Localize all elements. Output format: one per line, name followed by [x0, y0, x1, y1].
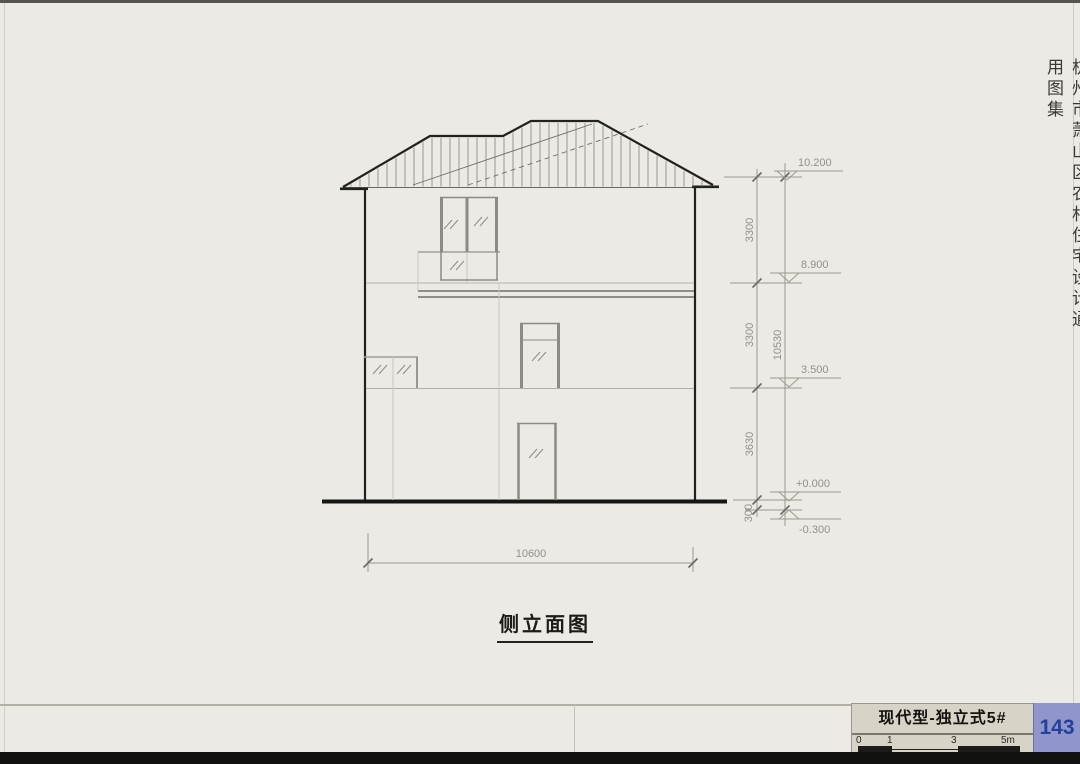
dimension-texts: 3300 3300 3630 300 10530 [743, 218, 784, 522]
atlas-page: 3300 3300 3630 300 10530 10.200 8.900 3.… [0, 0, 1080, 764]
page-number: 143 [1033, 703, 1080, 752]
drawing-title: 侧立面图 [497, 608, 593, 643]
level-mark-ground: +0.000 [770, 478, 841, 501]
scale-label-1: 1 [887, 735, 893, 746]
page-bottom-bar [0, 752, 1080, 764]
walls [365, 187, 695, 500]
window-middle [520, 323, 560, 388]
title-block-rule [0, 704, 851, 706]
door [517, 423, 557, 500]
width-dimension: 10600 [364, 533, 698, 572]
dim-overall-height: 10530 [772, 330, 784, 361]
scale-label-3: 3 [951, 735, 957, 746]
elevation-drawing-canvas: 3300 3300 3630 300 10530 10.200 8.900 3.… [0, 0, 1080, 764]
dim-seg-0: 3300 [744, 218, 756, 242]
level-mark-floor2: 8.900 [770, 259, 841, 282]
facade-lines [364, 252, 694, 500]
scale-bar: 0 1 3 5m [852, 735, 1033, 753]
level-value-belt: 3.500 [801, 364, 829, 376]
level-value-floor2: 8.900 [801, 259, 829, 271]
dim-seg-2: 3630 [744, 432, 756, 456]
window-upper [440, 197, 498, 280]
title-block: 现代型-独立式5# 0 1 3 5m 143 [851, 703, 1080, 752]
scale-label-5m: 5m [1001, 735, 1015, 746]
title-block-faint-divider [574, 705, 575, 752]
roof-seam-lines [413, 124, 648, 185]
level-value-ground: +0.000 [796, 478, 830, 490]
design-type-label: 现代型-独立式5# [852, 704, 1033, 735]
level-value-roof: 10.200 [798, 157, 832, 169]
title-block-main: 现代型-独立式5# 0 1 3 5m [851, 703, 1033, 752]
level-mark-belt: 3.500 [770, 364, 841, 387]
dimension-chains [724, 163, 802, 526]
width-dim-value: 10600 [516, 548, 547, 560]
roof-hatching [351, 123, 702, 187]
roof-seam-1 [413, 124, 592, 185]
scale-label-0: 0 [856, 735, 862, 746]
dim-seg-3: 300 [743, 504, 755, 522]
dim-seg-1: 3300 [744, 323, 756, 347]
level-value-below-grade: -0.300 [799, 524, 830, 536]
roof [340, 121, 719, 189]
roof-outline [343, 121, 713, 187]
atlas-side-note: 杭州市萧山区农村住宅设计通用图集 [1041, 58, 1080, 348]
